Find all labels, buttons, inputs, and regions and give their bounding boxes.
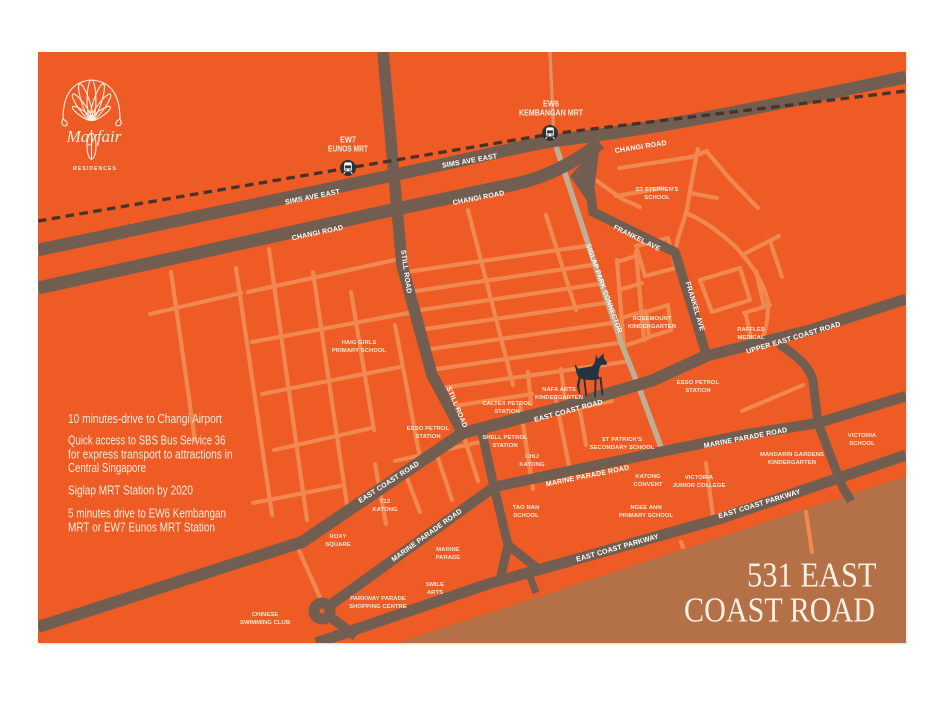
svg-text:531 EAST: 531 EAST [747,556,877,595]
svg-text:for express transport to attra: for express transport to attractions in [68,447,233,461]
svg-text:Quick access to SBS Bus Servic: Quick access to SBS Bus Service 36 [68,434,226,448]
svg-text:EW6: EW6 [543,100,560,109]
svg-text:COAST ROAD: COAST ROAD [684,591,875,630]
svg-text:MRT or EW7 Eunos MRT Station: MRT or EW7 Eunos MRT Station [68,520,215,534]
svg-text:Central Singapore: Central Singapore [68,461,146,475]
svg-text:Siglap MRT Station by 2020: Siglap MRT Station by 2020 [68,484,193,498]
svg-text:EUNOS MRT: EUNOS MRT [328,145,368,154]
svg-text:5 minutes drive to EW6 Kembang: 5 minutes drive to EW6 Kembangan [68,507,226,521]
svg-text:Mayfair: Mayfair [66,127,122,146]
svg-text:KEMBANGAN MRT: KEMBANGAN MRT [519,109,583,118]
svg-text:EW7: EW7 [340,136,357,145]
svg-text:RESIDENCES: RESIDENCES [73,166,117,172]
svg-text:10 minutes-drive to Changi Air: 10 minutes-drive to Changi Airport [68,412,222,426]
